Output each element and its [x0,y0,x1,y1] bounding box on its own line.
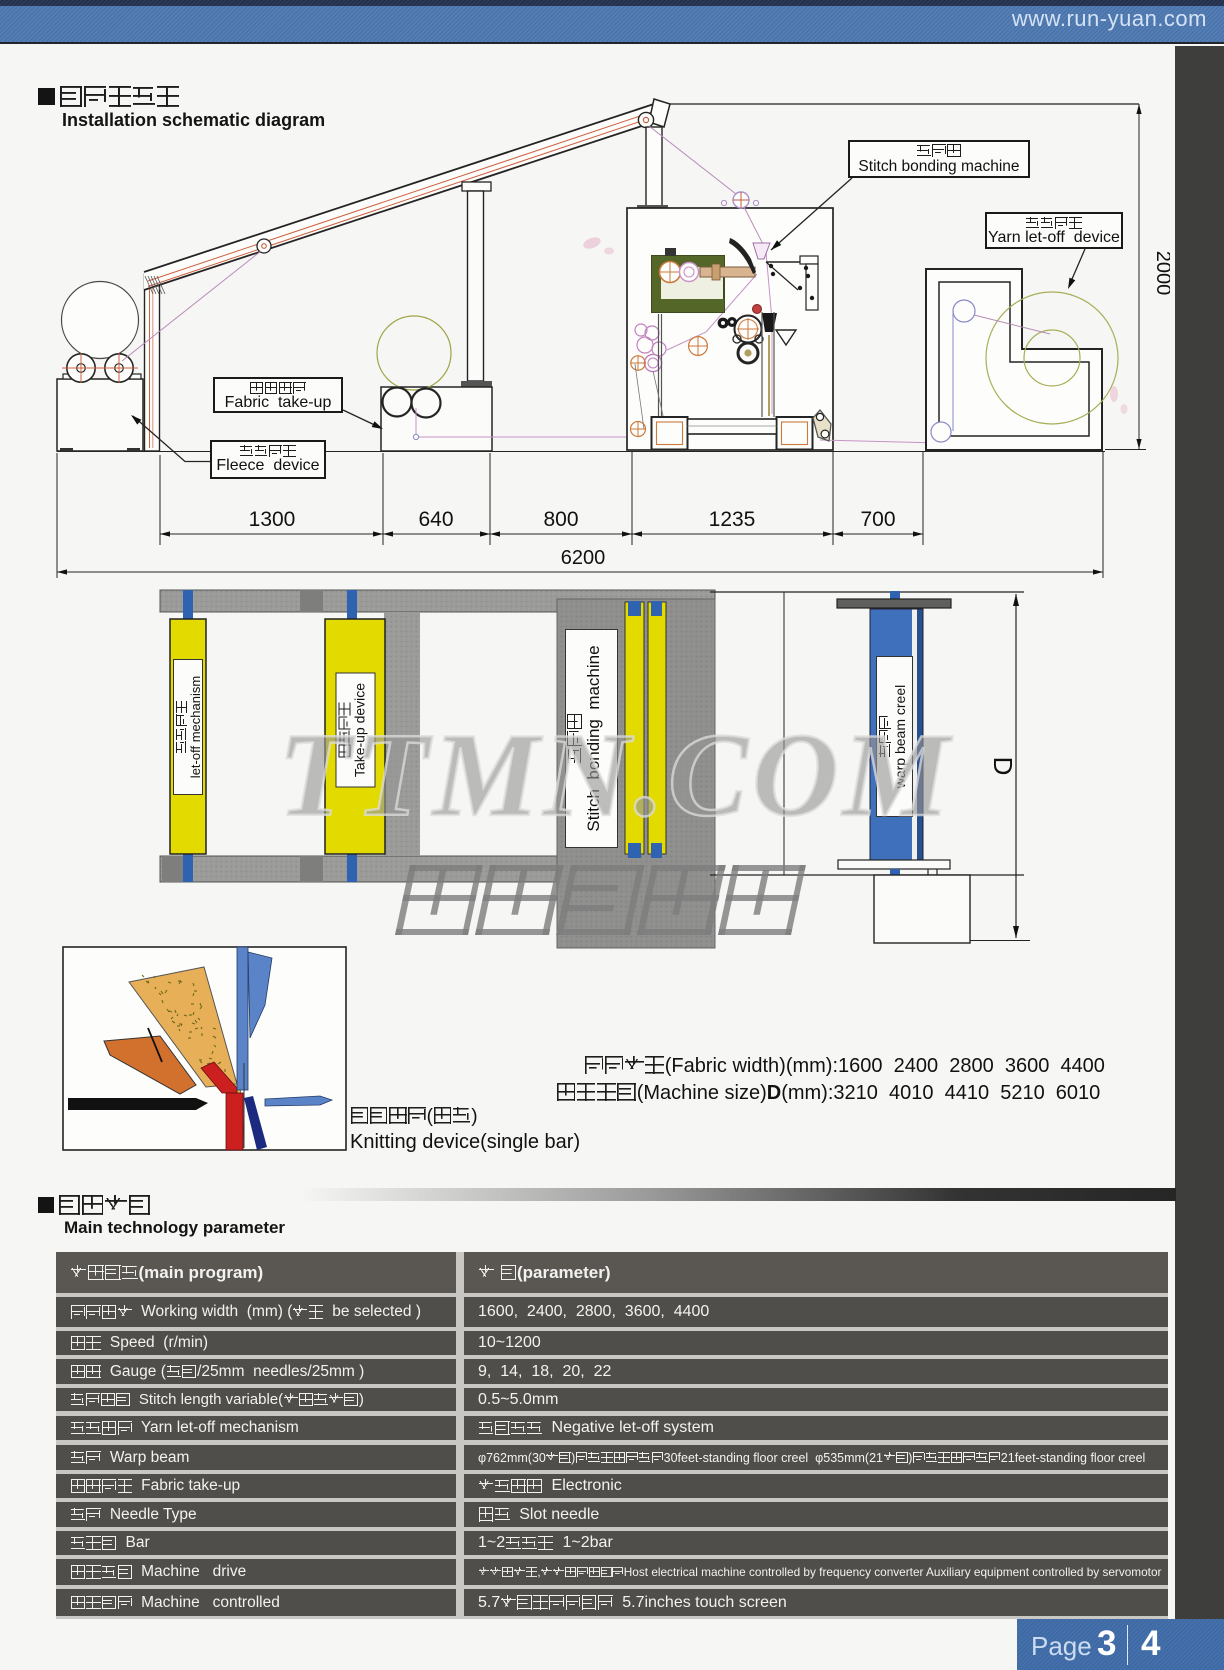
svg-text:6200: 6200 [561,547,606,569]
svg-text:1300: 1300 [249,508,296,531]
svg-text:D: D [988,757,1018,776]
svg-text:700: 700 [860,508,895,531]
svg-text:2000: 2000 [1152,251,1170,296]
svg-text:1235: 1235 [709,508,756,531]
svg-text:800: 800 [543,508,578,531]
svg-text:640: 640 [418,508,453,531]
